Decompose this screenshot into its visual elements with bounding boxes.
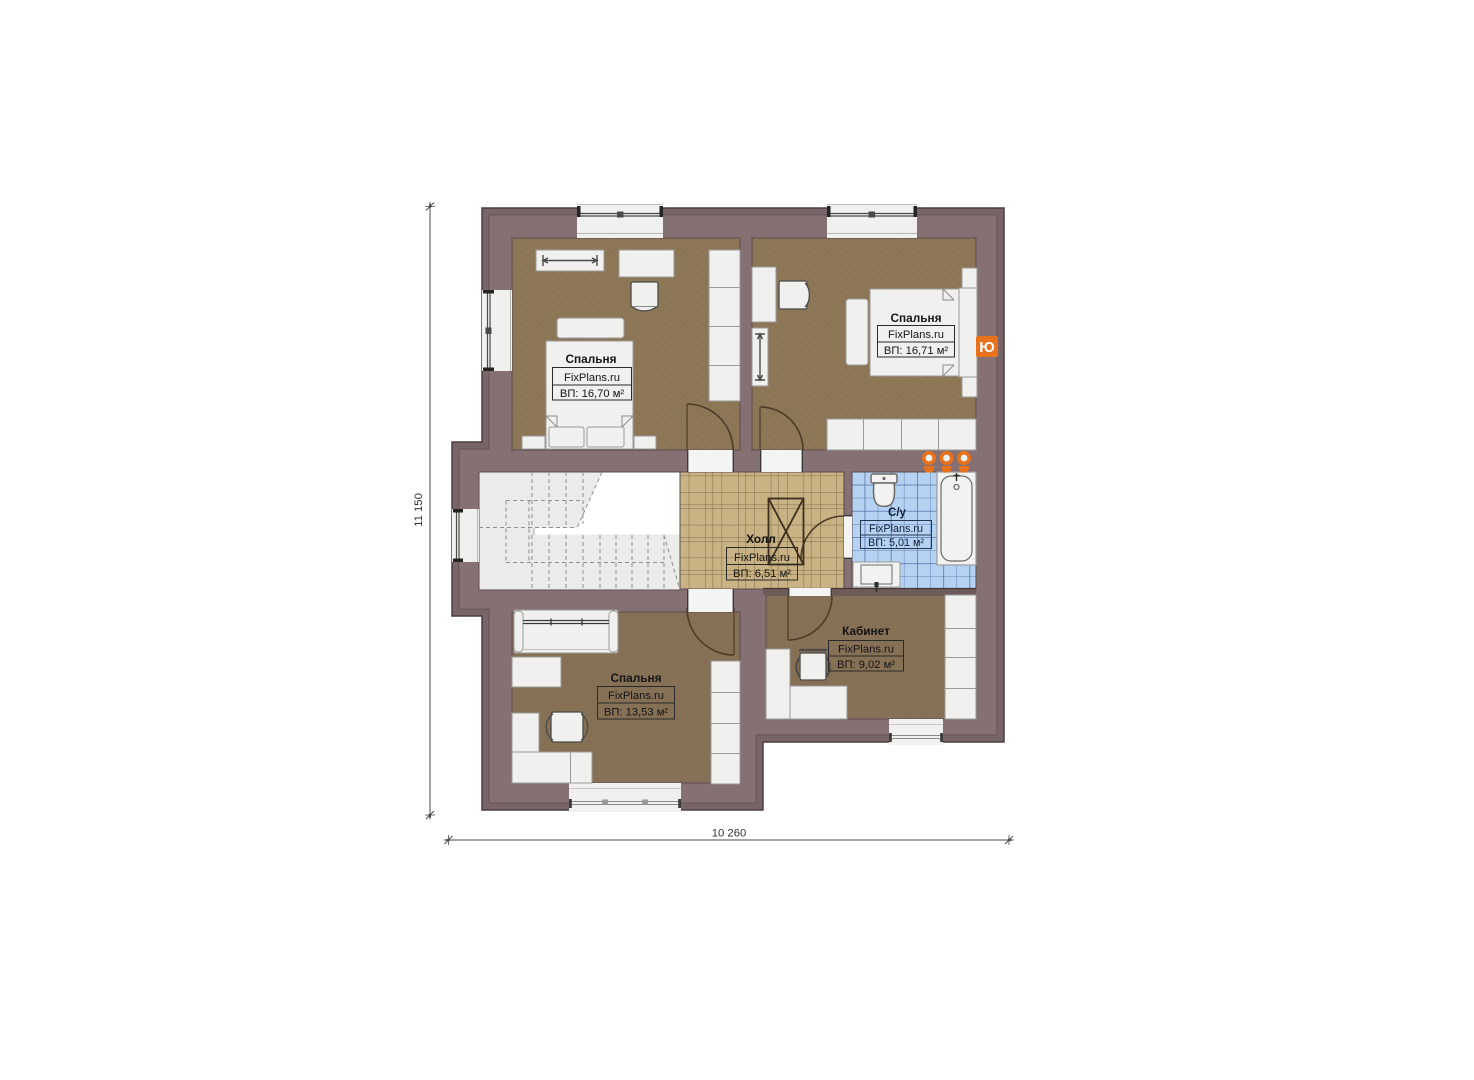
svg-text:FixPlans.ru: FixPlans.ru [888, 329, 944, 341]
svg-text:FixPlans.ru: FixPlans.ru [564, 372, 620, 384]
svg-text:FixPlans.ru: FixPlans.ru [608, 690, 664, 702]
svg-text:Кабинет: Кабинет [842, 624, 890, 638]
svg-text:ВП: 16,71 м²: ВП: 16,71 м² [884, 345, 949, 357]
svg-text:ВП: 9,02 м²: ВП: 9,02 м² [837, 659, 895, 671]
svg-text:FixPlans.ru: FixPlans.ru [838, 644, 894, 656]
svg-text:Спальня: Спальня [891, 311, 942, 325]
svg-text:Ю: Ю [979, 339, 994, 356]
svg-text:FixPlans.ru: FixPlans.ru [734, 552, 790, 564]
svg-text:ВП: 5,01 м²: ВП: 5,01 м² [868, 537, 924, 549]
svg-text:ВП: 6,51 м²: ВП: 6,51 м² [733, 568, 791, 580]
svg-text:ВП: 16,70 м²: ВП: 16,70 м² [560, 388, 625, 400]
svg-text:Холл: Холл [746, 532, 776, 546]
svg-text:FixPlans.ru: FixPlans.ru [869, 523, 923, 535]
svg-text:ВП: 13,53 м²: ВП: 13,53 м² [604, 707, 669, 719]
svg-text:Спальня: Спальня [611, 671, 662, 685]
svg-text:С/у: С/у [888, 507, 907, 519]
svg-text:Спальня: Спальня [566, 352, 617, 366]
svg-text:11 150: 11 150 [413, 493, 425, 527]
svg-text:10 260: 10 260 [712, 828, 747, 840]
